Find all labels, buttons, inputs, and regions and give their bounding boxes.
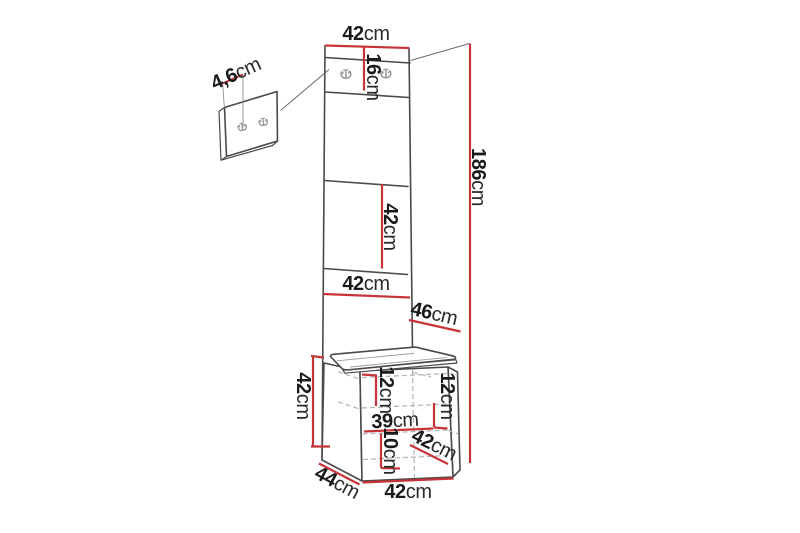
dim-label-middle-panel-height: 42cm	[379, 203, 401, 250]
height-extension-line	[411, 44, 470, 61]
pointer-line	[281, 70, 330, 111]
dim-label-bench-inner-left-height: 12cm	[375, 366, 397, 413]
dim-label-small-panel-depth: 4,6cm	[208, 53, 265, 94]
dim-label-top-width: 42cm	[342, 23, 389, 45]
panel-division-1	[324, 181, 408, 187]
dim-label-bench-side-height: 42cm	[292, 372, 314, 419]
dim-label-bench-front-width: 42cm	[384, 481, 431, 503]
dim-label-bench-lower-inner-height: 10cm	[379, 427, 401, 474]
product-dimension-image: 42cm 16cm 4,6cm 186cm 42cm 42cm 46cm 42c…	[0, 0, 800, 533]
bench-left-side-face	[322, 363, 362, 481]
coat-hook-icon	[341, 70, 351, 79]
dim-label-total-height: 186cm	[467, 148, 489, 206]
dim-label-hook-strip-height: 16cm	[362, 53, 384, 100]
dim-label-lower-panel-width: 42cm	[342, 273, 389, 295]
dim-label-upper-side-depth: 46cm	[408, 298, 459, 330]
dim-label-bench-inner-right-height: 12cm	[436, 372, 458, 419]
dim-line-top-width	[325, 46, 409, 49]
